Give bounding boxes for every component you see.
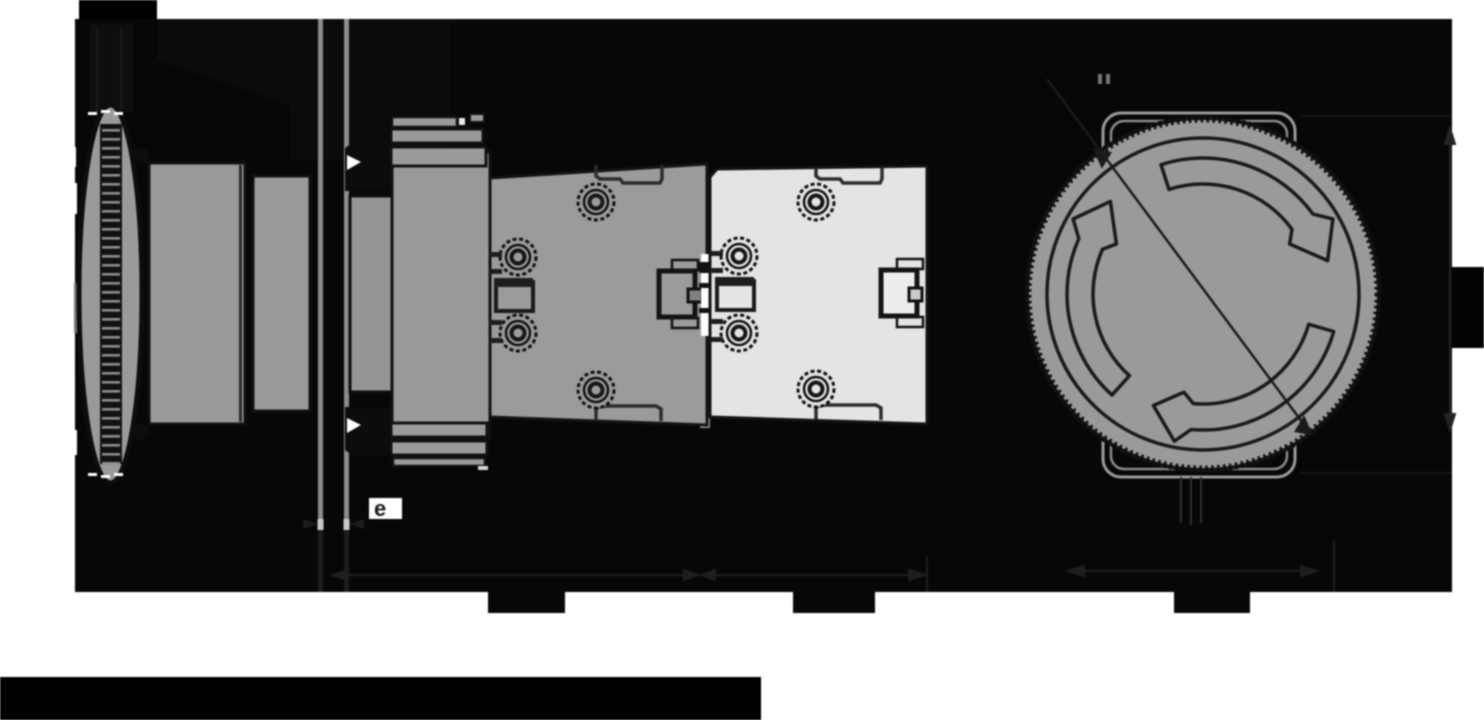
svg-text:e: e	[374, 496, 386, 521]
